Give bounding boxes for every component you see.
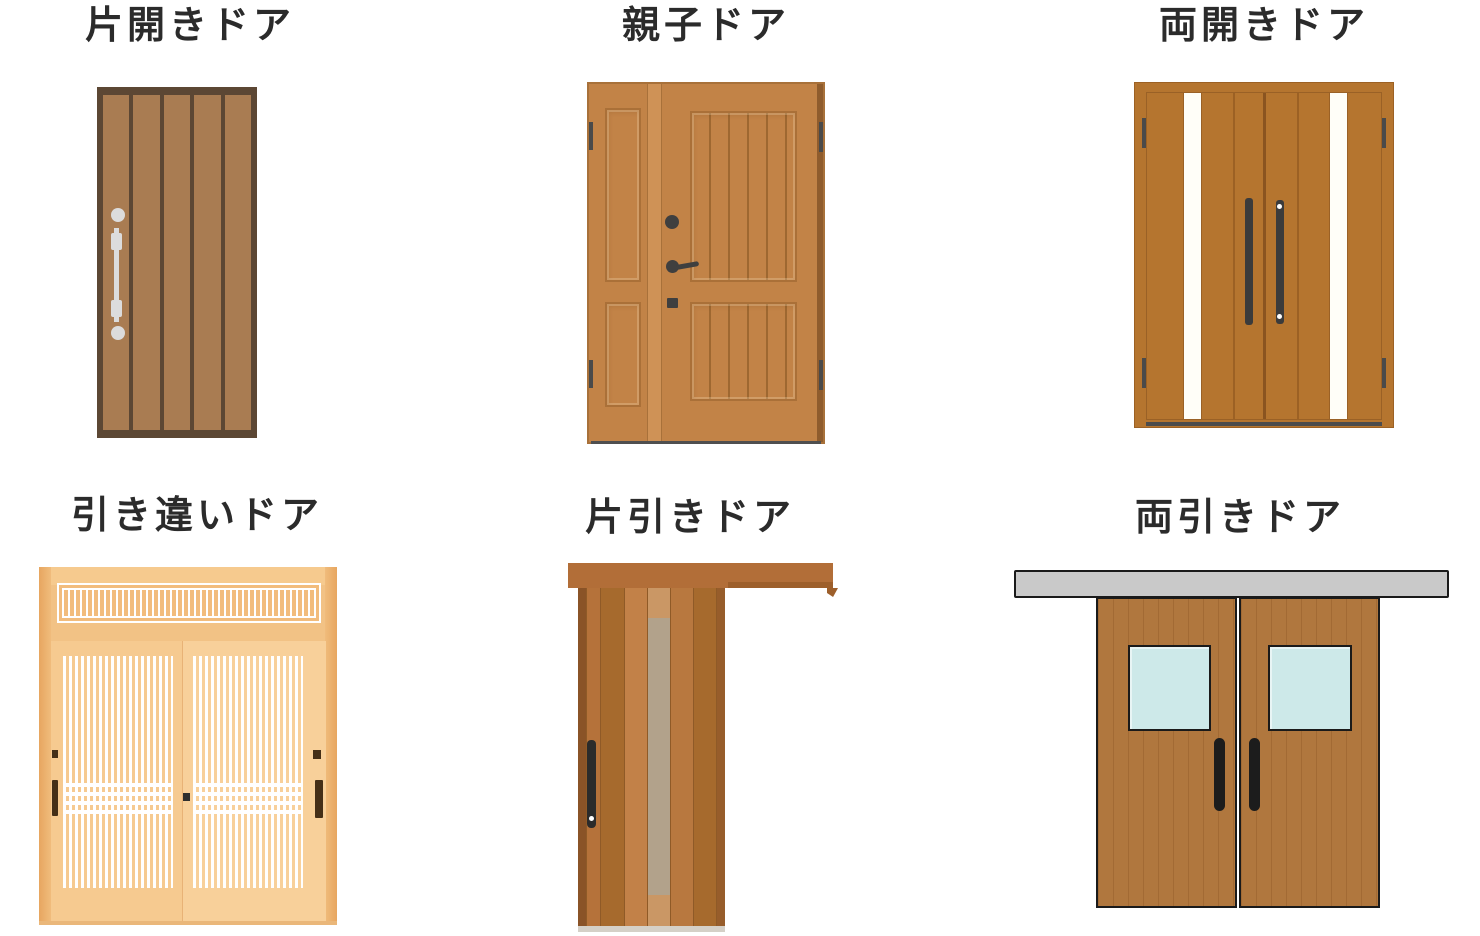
deadbolt-knob-icon <box>665 215 679 229</box>
hinge-icon <box>1142 358 1146 388</box>
double-swing-door-icon <box>1134 82 1394 428</box>
rail-shadow <box>728 582 833 588</box>
lattice-crossband <box>193 783 303 819</box>
door-plank <box>694 588 716 926</box>
single-sliding-door-icon <box>578 588 725 926</box>
threshold <box>591 441 821 444</box>
transom-slats <box>62 588 316 618</box>
pull-handle-icon <box>1276 200 1284 324</box>
child-leaf-panel-top <box>605 108 641 282</box>
single-swing-door-icon <box>97 87 257 438</box>
latch-icon <box>52 750 58 758</box>
main-leaf-panel-bottom <box>690 302 797 401</box>
right-lattice-glass <box>193 656 303 888</box>
door-types-diagram: 片開きドア 親子ドア 両開きドア 引き違いドア 片引きドア 両引きドア <box>0 0 1480 936</box>
left-lattice-glass <box>63 656 173 888</box>
door-planks <box>103 95 251 430</box>
hanging-rail <box>1014 570 1449 598</box>
frosted-glass-panel <box>648 618 670 895</box>
threshold <box>1146 422 1382 426</box>
hinge-icon <box>589 122 593 150</box>
glass-slit <box>1329 93 1348 419</box>
handle-bracket-bottom <box>111 300 122 317</box>
lock-knob-icon <box>111 326 125 340</box>
center-latch-icon <box>183 793 190 801</box>
door-label-single-sliding: 片引きドア <box>540 496 840 540</box>
deadbolt-knob-icon <box>111 208 125 222</box>
pull-handle-icon <box>1245 198 1253 325</box>
parent-child-door-icon <box>587 82 825 444</box>
left-jamb <box>39 567 51 922</box>
right-jamb <box>325 567 337 922</box>
transom-window <box>57 583 321 623</box>
glass-slit <box>1183 93 1202 419</box>
handle-screw <box>1277 204 1282 209</box>
hinge-icon <box>819 122 823 152</box>
sliding-bypass-door-icon <box>39 567 337 925</box>
sliding-rail <box>568 563 833 588</box>
latch-icon <box>313 750 321 759</box>
pull-handle-icon <box>315 780 323 818</box>
center-stile <box>647 84 662 442</box>
threshold <box>578 926 725 932</box>
hinge-icon <box>589 360 593 388</box>
door-window <box>1268 645 1352 731</box>
door-window <box>1128 645 1211 731</box>
plank-divider <box>1233 93 1235 419</box>
door-edge <box>578 588 586 926</box>
handle-bracket-top <box>111 233 122 250</box>
door-plank <box>601 588 624 926</box>
pull-handle-icon <box>1214 738 1225 811</box>
pull-handle-icon <box>52 780 58 816</box>
rail-end-cap <box>827 588 838 597</box>
door-label-sliding-bypass: 引き違いドア <box>47 494 347 538</box>
door-leaves <box>1146 92 1382 420</box>
hinge-icon <box>819 360 823 390</box>
door-label-double-sliding: 両引きドア <box>1090 496 1390 540</box>
door-label-double-swing: 両開きドア <box>1114 4 1414 48</box>
main-leaf-panel-top <box>690 111 797 282</box>
sill <box>39 921 337 925</box>
lattice-crossband <box>63 783 173 819</box>
double-sliding-left-door <box>1096 597 1237 908</box>
double-sliding-right-door <box>1239 597 1380 908</box>
hinge-icon <box>1382 118 1386 148</box>
pull-handle-icon <box>587 740 596 828</box>
handle-screw <box>1277 314 1282 319</box>
hinge-icon <box>1142 118 1146 148</box>
door-plank <box>671 588 693 926</box>
glass-plank <box>648 588 670 926</box>
hinge-icon <box>1382 358 1386 388</box>
plank-divider <box>1297 93 1299 419</box>
door-plank <box>625 588 647 926</box>
handle-screw <box>589 816 594 821</box>
lock-plate-icon <box>667 298 678 308</box>
door-edge <box>717 588 725 926</box>
child-leaf-panel-bottom <box>605 302 641 407</box>
pull-handle-icon <box>1249 738 1260 811</box>
door-label-parent-child: 親子ドア <box>556 4 856 48</box>
door-label-single-swing: 片開きドア <box>40 4 340 48</box>
